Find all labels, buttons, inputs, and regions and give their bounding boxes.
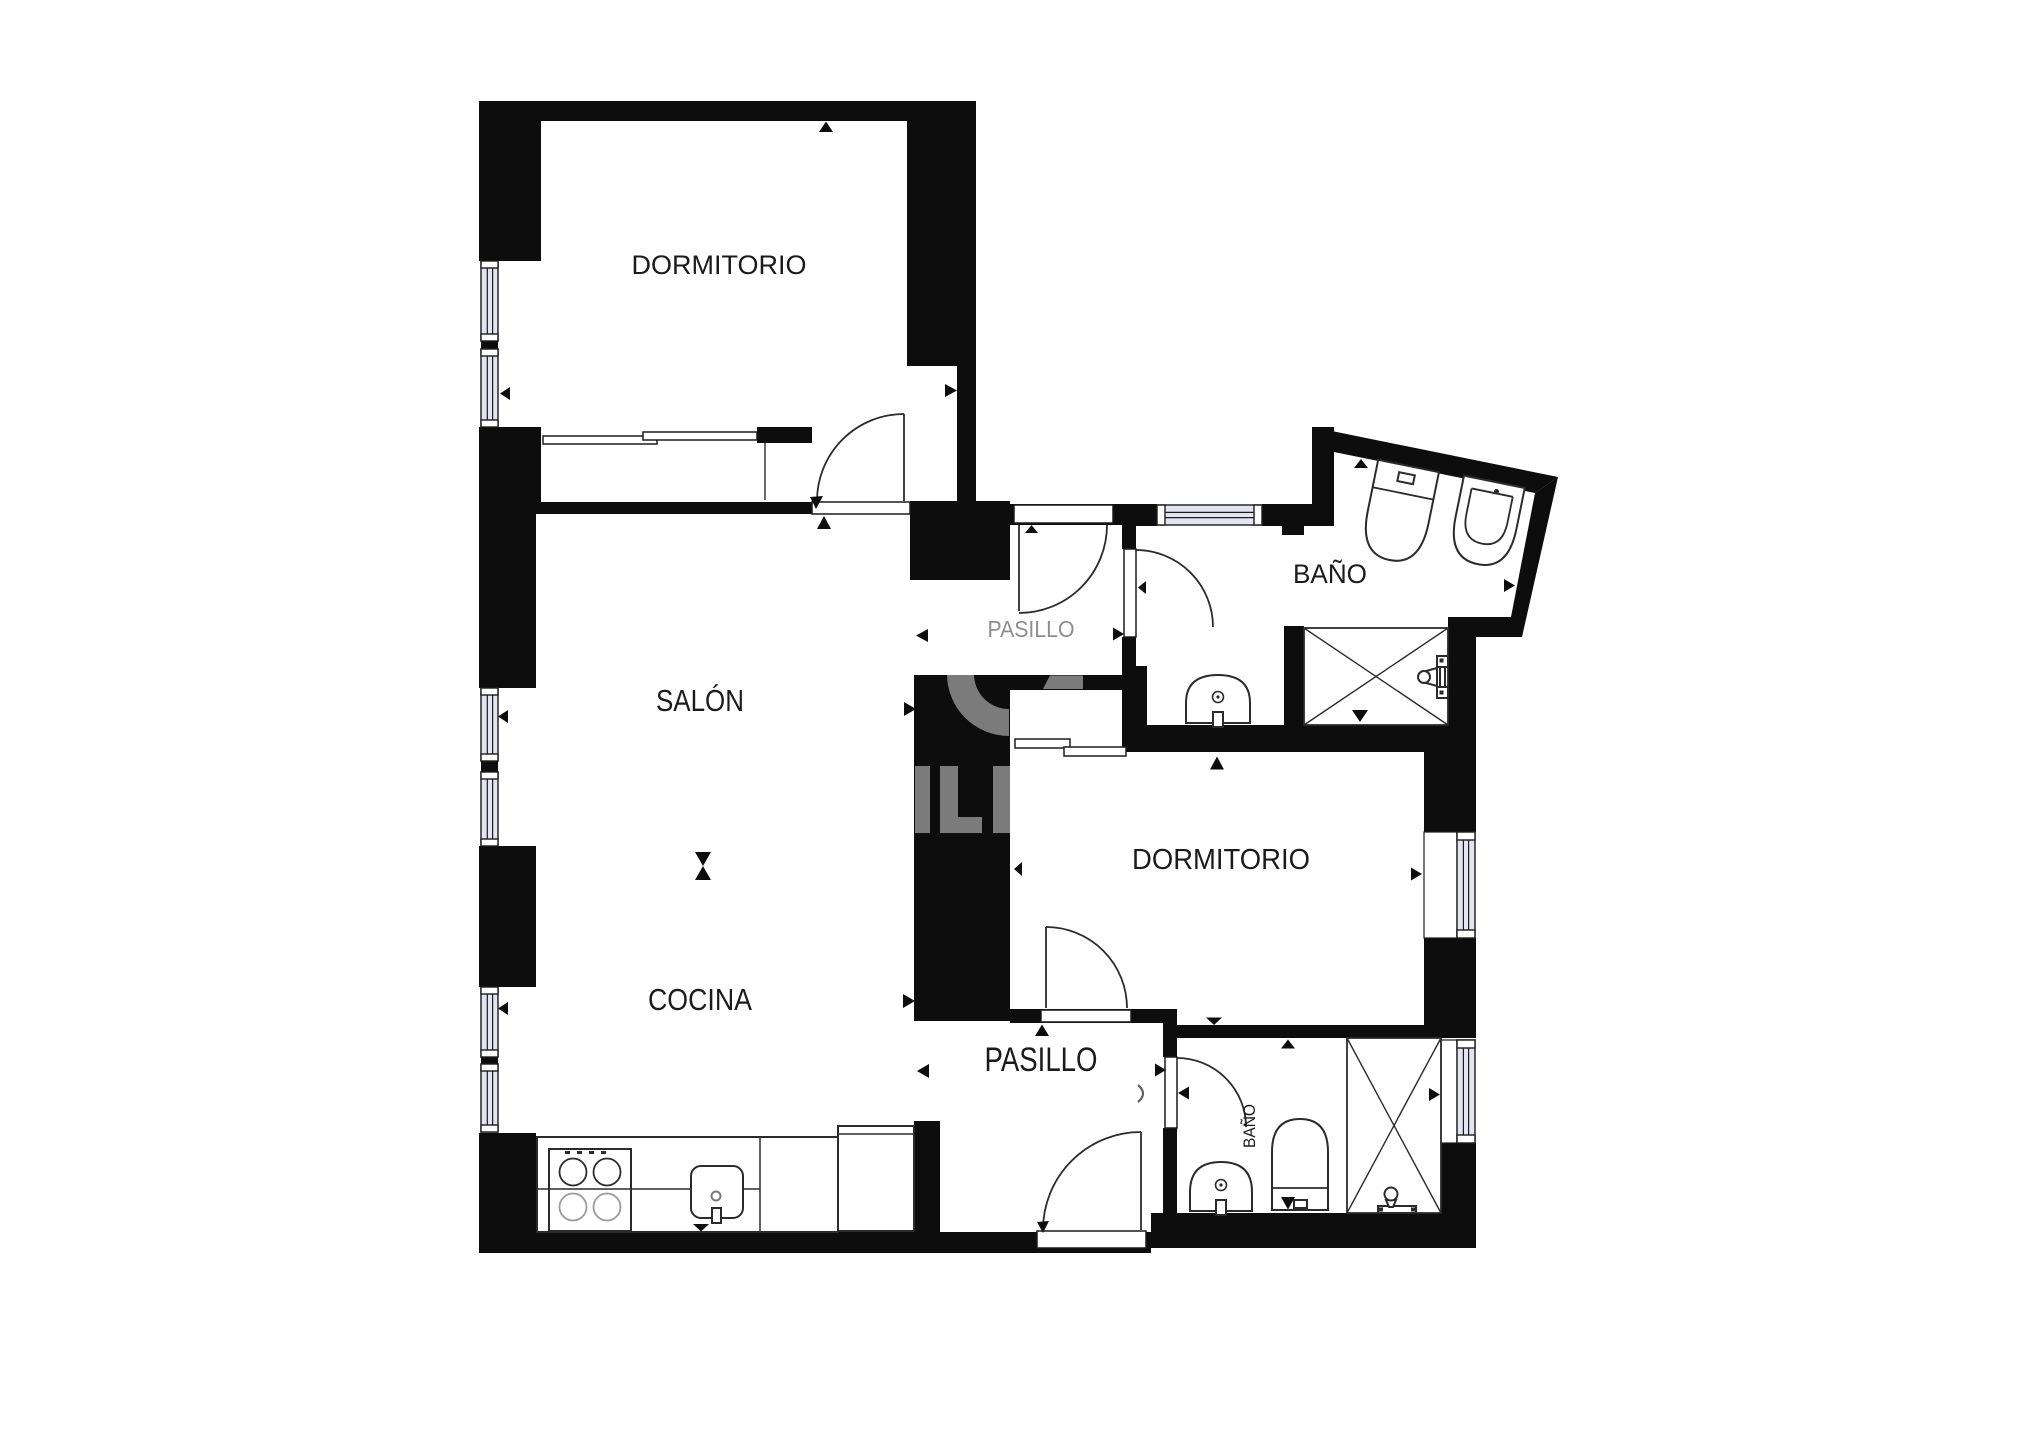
svg-text:BAÑO: BAÑO xyxy=(1240,1104,1259,1148)
svg-text:DORMITORIO: DORMITORIO xyxy=(1132,844,1310,876)
svg-text:PASILLO: PASILLO xyxy=(985,1041,1098,1079)
svg-text:COCINA: COCINA xyxy=(648,982,752,1017)
svg-text:BAÑO: BAÑO xyxy=(1293,558,1367,589)
svg-text:SALÓN: SALÓN xyxy=(656,683,744,718)
svg-text:DORMITORIO: DORMITORIO xyxy=(632,250,807,280)
svg-text:PASILLO: PASILLO xyxy=(988,616,1075,642)
